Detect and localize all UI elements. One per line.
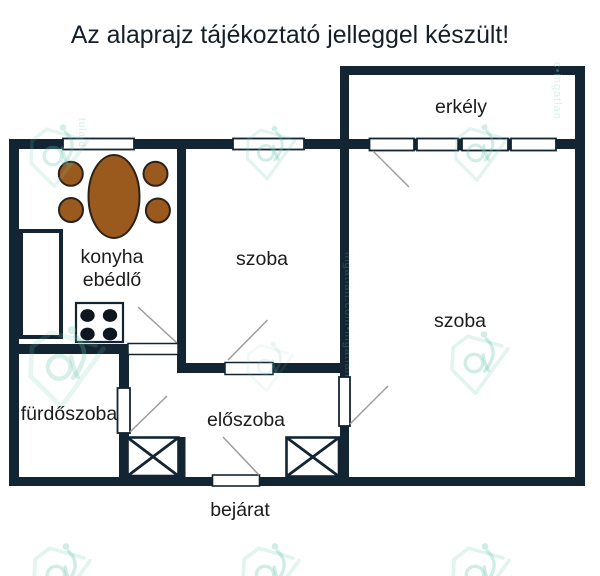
svg-text:c•ingatlan: c•ingatlan bbox=[551, 62, 563, 120]
svg-text:Az alaprajz tájékoztató jelleg: Az alaprajz tájékoztató jelleggel készül… bbox=[71, 22, 509, 49]
svg-text:szoba: szoba bbox=[236, 248, 288, 270]
svg-text:előszoba: előszoba bbox=[207, 409, 285, 431]
svg-text:ingatlan.com•ingatlan: ingatlan.com•ingatlan bbox=[342, 252, 354, 378]
svg-text:tulajd: tulajd bbox=[76, 118, 87, 148]
svg-text:bejárat: bejárat bbox=[210, 499, 270, 521]
svg-text:erkély: erkély bbox=[435, 96, 487, 118]
svg-text:szoba: szoba bbox=[434, 310, 486, 332]
svg-text:fürdőszoba: fürdőszoba bbox=[21, 403, 118, 425]
svg-text:ebédlő: ebédlő bbox=[83, 269, 142, 291]
svg-text:konyha: konyha bbox=[81, 246, 144, 268]
